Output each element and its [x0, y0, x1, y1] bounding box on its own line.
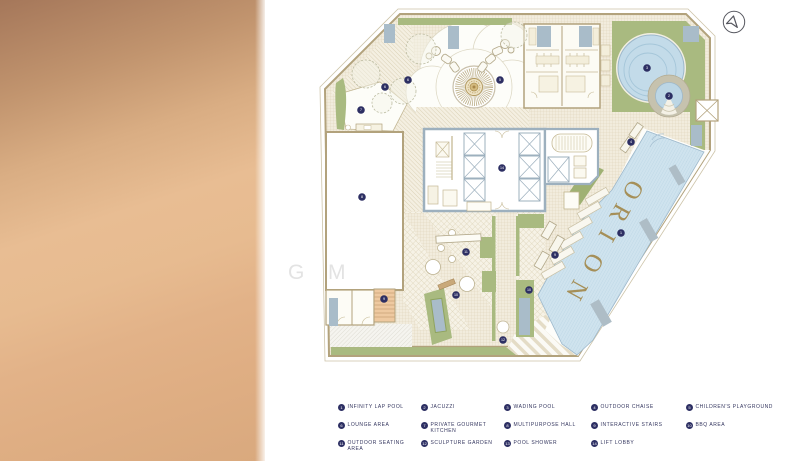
svg-text:5: 5 — [499, 78, 501, 82]
svg-text:8: 8 — [361, 195, 363, 199]
svg-text:6: 6 — [407, 78, 409, 82]
svg-text:10: 10 — [454, 293, 458, 297]
svg-text:11: 11 — [464, 250, 468, 254]
svg-text:10: 10 — [527, 288, 531, 292]
svg-text:2: 2 — [668, 94, 670, 98]
svg-text:3: 3 — [646, 66, 648, 70]
svg-text:14: 14 — [500, 166, 504, 170]
svg-text:1: 1 — [620, 231, 622, 235]
svg-text:4: 4 — [630, 140, 632, 144]
svg-text:12: 12 — [501, 338, 505, 342]
svg-text:6: 6 — [384, 85, 386, 89]
svg-text:9: 9 — [383, 297, 385, 301]
svg-text:9: 9 — [554, 253, 556, 257]
svg-text:7: 7 — [360, 108, 362, 112]
